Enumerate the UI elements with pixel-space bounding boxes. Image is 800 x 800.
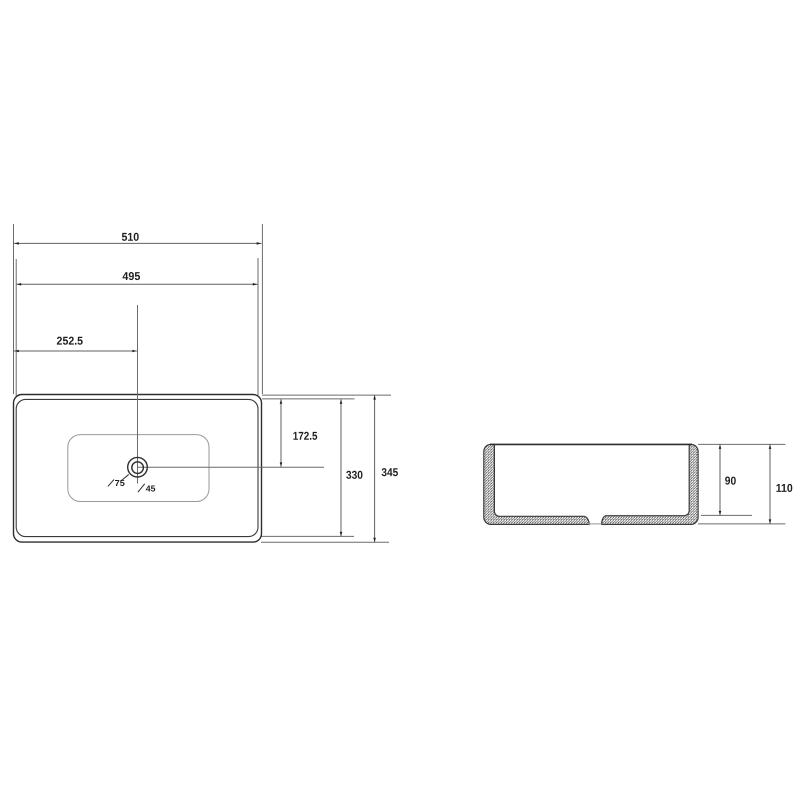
svg-text:90: 90 bbox=[725, 476, 736, 488]
svg-text:252.5: 252.5 bbox=[57, 336, 84, 348]
svg-text:510: 510 bbox=[122, 232, 140, 244]
svg-text:345: 345 bbox=[381, 467, 398, 479]
svg-text:45: 45 bbox=[146, 484, 156, 494]
svg-text:330: 330 bbox=[346, 470, 363, 482]
svg-text:495: 495 bbox=[122, 271, 141, 283]
svg-text:110: 110 bbox=[776, 483, 793, 495]
svg-text:172.5: 172.5 bbox=[293, 431, 318, 443]
svg-text:75: 75 bbox=[115, 478, 125, 488]
